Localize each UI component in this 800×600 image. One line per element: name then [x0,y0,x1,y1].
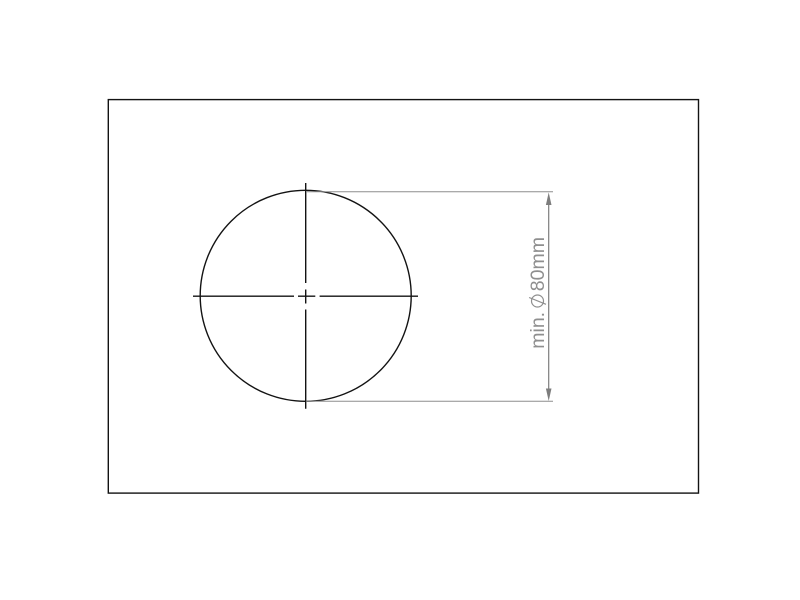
svg-text:80mm: 80mm [527,237,549,291]
svg-text:min.: min. [527,312,549,349]
